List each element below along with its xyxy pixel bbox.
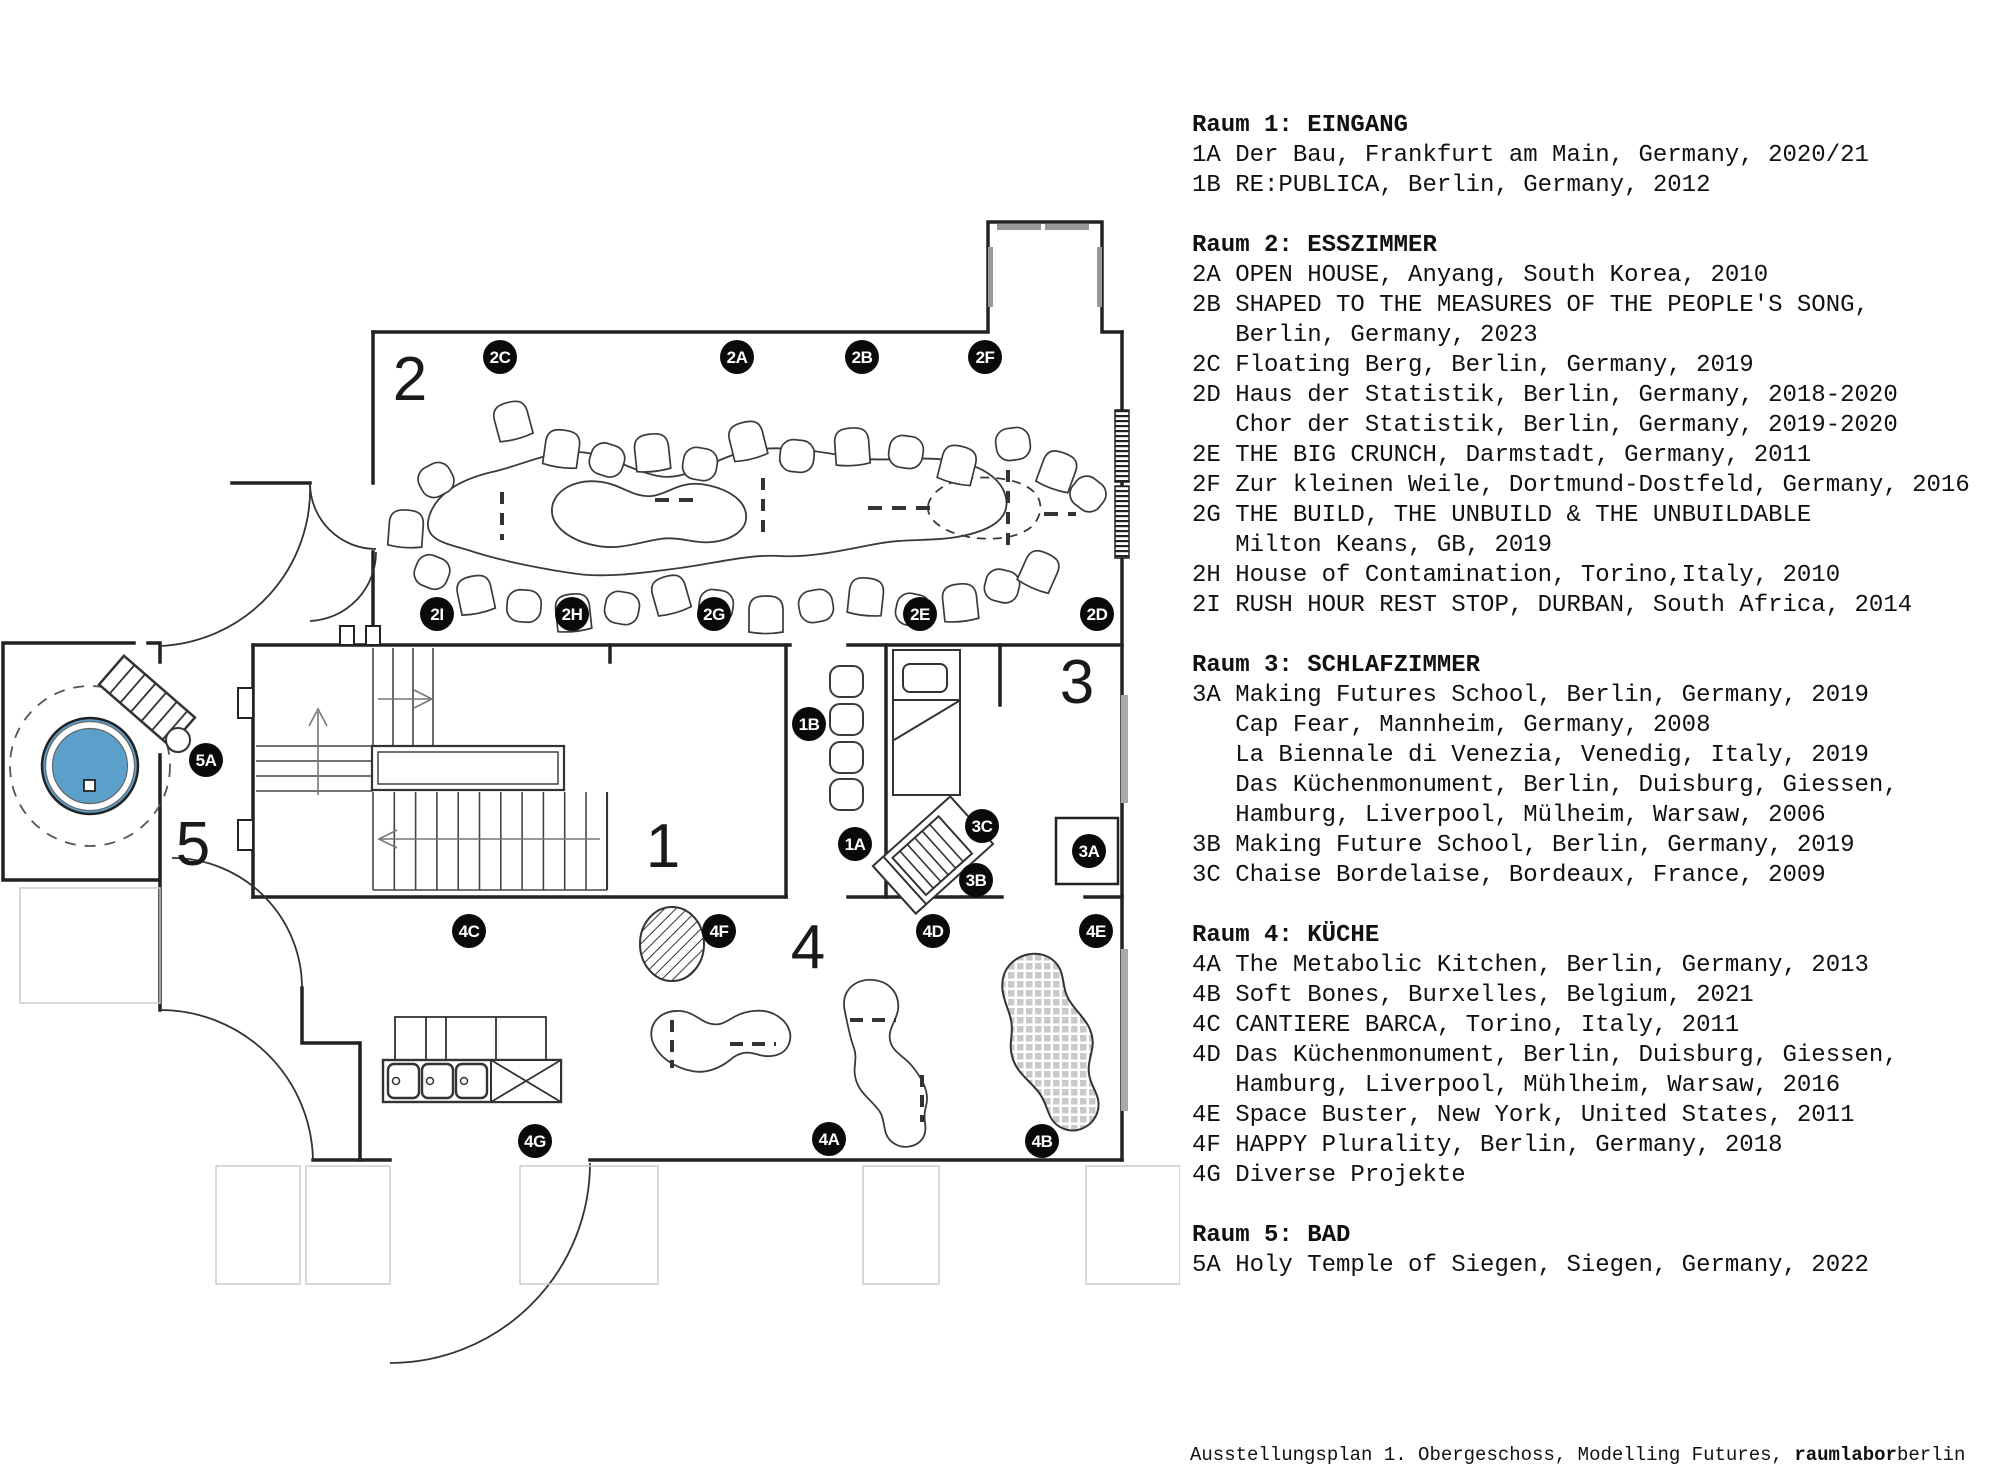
plan-marker-4b: 4B (1025, 1124, 1059, 1158)
legend-item: 4D Das Küchenmonument, Berlin, Duisburg,… (1192, 1041, 1970, 1071)
svg-text:2F: 2F (976, 348, 995, 367)
caption-brand-bold: raumlabor (1794, 1444, 1897, 1466)
exhibition-plan-page: 21345 2C2A2B2F2I2H2G2E2D1B1A3C3B3A5A4C4F… (0, 0, 2000, 1479)
chair (388, 509, 425, 549)
room-number-1: 1 (646, 812, 680, 881)
legend-section-header: Raum 1: EINGANG (1192, 111, 1970, 141)
svg-text:4B: 4B (1032, 1132, 1053, 1151)
svg-text:1B: 1B (799, 715, 820, 734)
staircase (256, 648, 607, 890)
legend-section-4: Raum 4: KÜCHE4A The Metabolic Kitchen, B… (1192, 921, 1970, 1191)
chair (542, 428, 581, 470)
legend-section-header: Raum 3: SCHLAFZIMMER (1192, 651, 1970, 681)
exhibit-4f-hatched (640, 907, 704, 981)
plan-marker-3a: 3A (1072, 834, 1106, 868)
legend-item: 4C CANTIERE BARCA, Torino, Italy, 2011 (1192, 1011, 1970, 1041)
plan-marker-4g: 4G (518, 1124, 552, 1158)
plan-marker-2e: 2E (903, 597, 937, 631)
legend-section-3: Raum 3: SCHLAFZIMMER3A Making Futures Sc… (1192, 651, 1970, 891)
plan-marker-2a: 2A (720, 340, 754, 374)
legend-item: 2C Floating Berg, Berlin, Germany, 2019 (1192, 351, 1970, 381)
svg-text:2C: 2C (490, 348, 511, 367)
bath-pool (10, 656, 195, 846)
svg-text:4D: 4D (923, 922, 944, 941)
svg-text:2G: 2G (703, 605, 725, 624)
svg-text:4A: 4A (819, 1130, 840, 1149)
legend: Raum 1: EINGANG1A Der Bau, Frankfurt am … (1192, 111, 1970, 1311)
chair (602, 589, 641, 626)
legend-item: Berlin, Germany, 2023 (1192, 321, 1970, 351)
chair (994, 426, 1032, 462)
svg-text:4G: 4G (524, 1132, 546, 1151)
legend-item: Chor der Statistik, Berlin, Germany, 201… (1192, 411, 1970, 441)
svg-text:2A: 2A (727, 348, 748, 367)
plan-marker-4d: 4D (916, 914, 950, 948)
svg-text:3B: 3B (966, 871, 987, 890)
chair (834, 427, 871, 467)
legend-item: 1A Der Bau, Frankfurt am Main, Germany, … (1192, 141, 1970, 171)
chair (749, 596, 783, 634)
legend-section-header: Raum 2: ESSZIMMER (1192, 231, 1970, 261)
plan-marker-3c: 3C (965, 809, 999, 843)
svg-text:4E: 4E (1086, 922, 1106, 941)
svg-text:3A: 3A (1079, 842, 1100, 861)
chair (680, 445, 719, 482)
pool-water (42, 718, 138, 814)
plan-marker-2i: 2I (420, 597, 454, 631)
legend-item: Hamburg, Liverpool, Mühlheim, Warsaw, 20… (1192, 1071, 1970, 1101)
svg-text:4F: 4F (710, 922, 729, 941)
legend-item: Hamburg, Liverpool, Mülheim, Warsaw, 200… (1192, 801, 1970, 831)
plan-marker-2b: 2B (845, 340, 879, 374)
plan-marker-2f: 2F (968, 340, 1002, 374)
chair (778, 438, 815, 473)
legend-item: La Biennale di Venezia, Venedig, Italy, … (1192, 741, 1970, 771)
bed (893, 650, 960, 795)
plan-marker-5a: 5A (189, 743, 223, 777)
plan-marker-1a: 1A (838, 827, 872, 861)
chair (413, 458, 458, 502)
chair (847, 576, 885, 617)
legend-item: 5A Holy Temple of Siegen, Siegen, German… (1192, 1251, 1970, 1281)
caption-text: Ausstellungsplan 1. Obergeschoss, Modell… (1190, 1444, 1794, 1466)
chair (937, 442, 979, 487)
legend-item: 4G Diverse Projekte (1192, 1161, 1970, 1191)
room-number-2: 2 (393, 345, 427, 414)
legend-item: Milton Keans, GB, 2019 (1192, 531, 1970, 561)
plan-marker-1b: 1B (792, 707, 826, 741)
wall-jambs (238, 626, 380, 850)
legend-section-header: Raum 4: KÜCHE (1192, 921, 1970, 951)
caption: Ausstellungsplan 1. Obergeschoss, Modell… (1190, 1443, 1965, 1467)
chair (491, 398, 534, 443)
legend-item: 3A Making Futures School, Berlin, German… (1192, 681, 1970, 711)
legend-item: 4F HAPPY Plurality, Berlin, Germany, 201… (1192, 1131, 1970, 1161)
chair (796, 587, 835, 624)
svg-text:2D: 2D (1087, 605, 1108, 624)
plan-marker-4c: 4C (452, 914, 486, 948)
lobby-seats (830, 666, 863, 810)
svg-text:2E: 2E (910, 605, 930, 624)
kitchen-islands (651, 980, 927, 1147)
chair (1017, 547, 1063, 595)
svg-text:4C: 4C (459, 922, 480, 941)
legend-item: 4B Soft Bones, Burxelles, Belgium, 2021 (1192, 981, 1970, 1011)
legend-item: 1B RE:PUBLICA, Berlin, Germany, 2012 (1192, 171, 1970, 201)
legend-item: Das Küchenmonument, Berlin, Duisburg, Gi… (1192, 771, 1970, 801)
chair (410, 551, 454, 593)
legend-item: 2I RUSH HOUR REST STOP, DURBAN, South Af… (1192, 591, 1970, 621)
svg-text:2I: 2I (430, 605, 443, 624)
plan-marker-3b: 3B (959, 863, 993, 897)
floor-plan: 21345 2C2A2B2F2I2H2G2E2D1B1A3C3B3A5A4C4F… (0, 0, 1180, 1479)
chair (726, 418, 768, 463)
plan-marker-4a: 4A (812, 1122, 846, 1156)
room-number-4: 4 (791, 913, 825, 982)
plan-marker-4f: 4F (702, 914, 736, 948)
legend-item: Cap Fear, Mannheim, Germany, 2008 (1192, 711, 1970, 741)
legend-section-1: Raum 1: EINGANG1A Der Bau, Frankfurt am … (1192, 111, 1970, 201)
kitchen-counter (383, 1017, 561, 1102)
svg-text:2B: 2B (852, 348, 873, 367)
plan-marker-2d: 2D (1080, 597, 1114, 631)
pool-drain (84, 780, 95, 791)
exhibit-4b-blob (1002, 954, 1098, 1131)
plan-marker-2h: 2H (555, 597, 589, 631)
window-wells (20, 888, 1180, 1284)
plan-marker-4e: 4E (1079, 914, 1113, 948)
legend-item: 2B SHAPED TO THE MEASURES OF THE PEOPLE'… (1192, 291, 1970, 321)
legend-section-2: Raum 2: ESSZIMMER2A OPEN HOUSE, Anyang, … (1192, 231, 1970, 621)
svg-text:5A: 5A (196, 751, 217, 770)
chair (887, 434, 925, 470)
caption-brand-rest: berlin (1897, 1444, 1965, 1466)
svg-text:1A: 1A (845, 835, 866, 854)
legend-item: 2E THE BIG CRUNCH, Darmstadt, Germany, 2… (1192, 441, 1970, 471)
plan-marker-2c: 2C (483, 340, 517, 374)
chair (941, 582, 979, 623)
legend-section-header: Raum 5: BAD (1192, 1221, 1970, 1251)
legend-item: 2A OPEN HOUSE, Anyang, South Korea, 2010 (1192, 261, 1970, 291)
legend-section-5: Raum 5: BAD5A Holy Temple of Siegen, Sie… (1192, 1221, 1970, 1281)
chair (455, 573, 496, 617)
legend-item: 4A The Metabolic Kitchen, Berlin, German… (1192, 951, 1970, 981)
legend-item: 2G THE BUILD, THE UNBUILD & THE UNBUILDA… (1192, 501, 1970, 531)
chair (633, 432, 671, 473)
legend-item: 2D Haus der Statistik, Berlin, Germany, … (1192, 381, 1970, 411)
plan-marker-2g: 2G (697, 597, 731, 631)
legend-item: 4E Space Buster, New York, United States… (1192, 1101, 1970, 1131)
svg-text:3C: 3C (972, 817, 993, 836)
dining-table (428, 448, 1076, 575)
legend-item: 3B Making Future School, Berlin, Germany… (1192, 831, 1970, 861)
room-number-3: 3 (1060, 648, 1094, 717)
svg-text:2H: 2H (562, 605, 583, 624)
legend-item: 2F Zur kleinen Weile, Dortmund-Dostfeld,… (1192, 471, 1970, 501)
chair (586, 440, 628, 481)
chair (982, 566, 1023, 605)
room-number-5: 5 (176, 810, 210, 879)
legend-item: 2H House of Contamination, Torino,Italy,… (1192, 561, 1970, 591)
legend-item: 3C Chaise Bordelaise, Bordeaux, France, … (1192, 861, 1970, 891)
chair (506, 589, 542, 623)
chair (649, 572, 692, 617)
pool-stool (166, 728, 190, 752)
